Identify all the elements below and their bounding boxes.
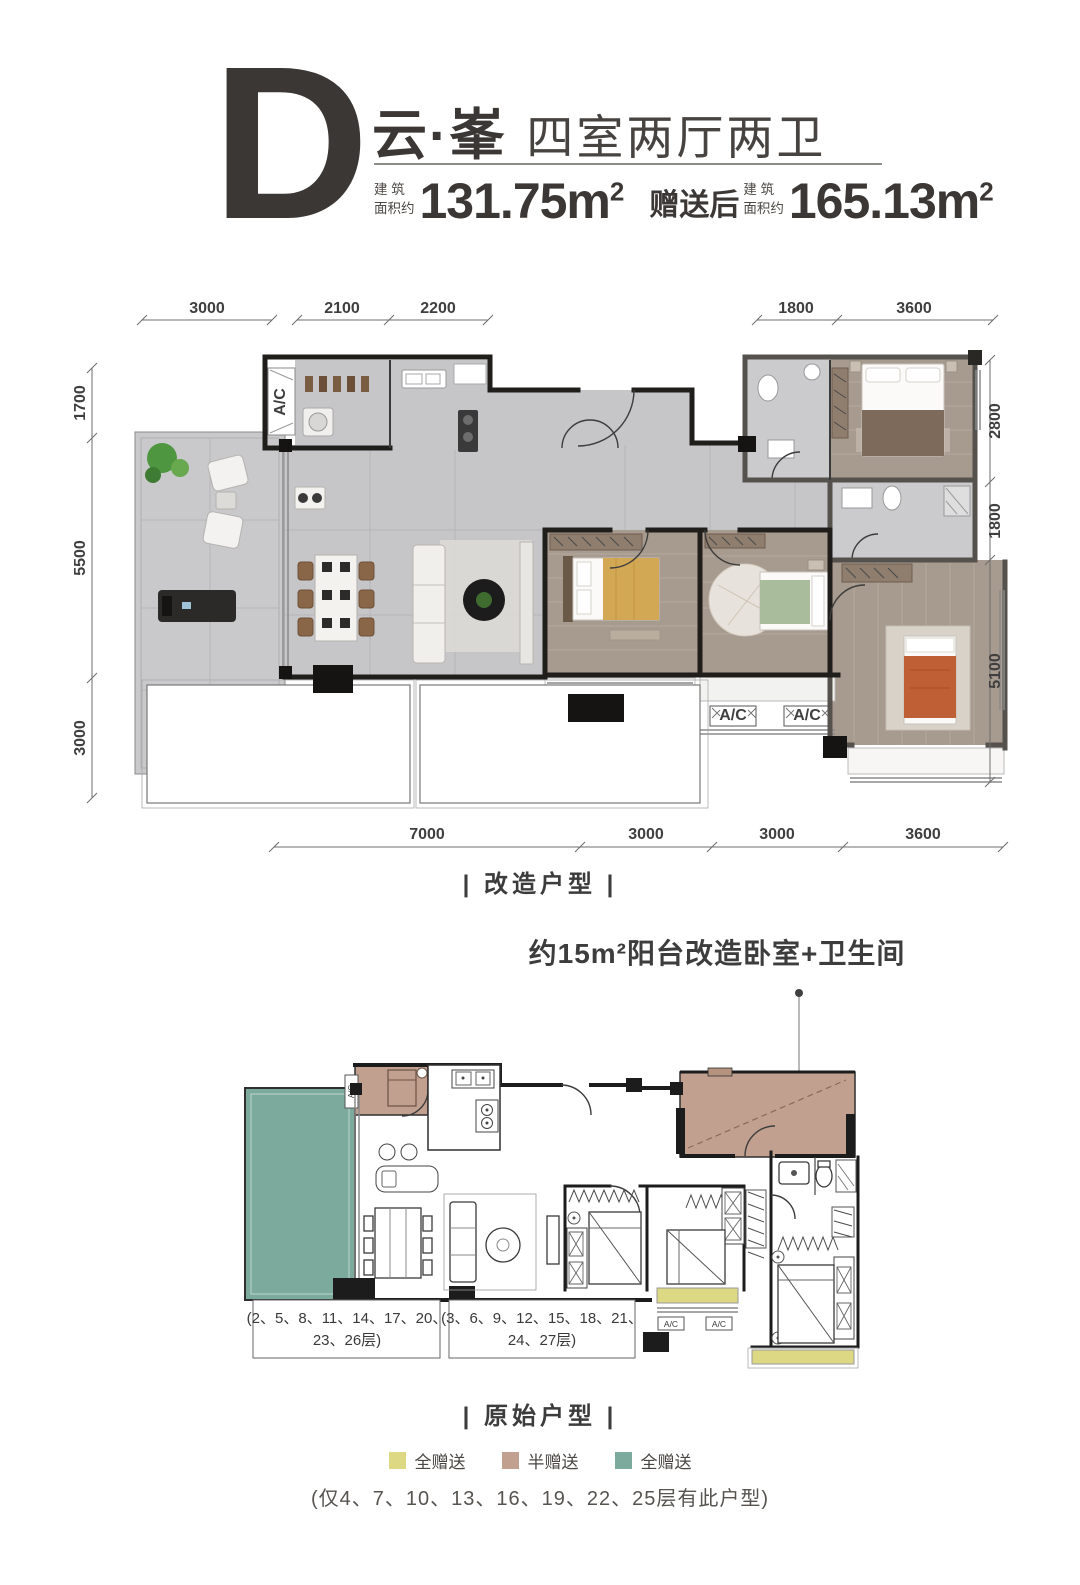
original-dining <box>364 1208 432 1278</box>
bedroom-top-right <box>830 358 975 480</box>
bench <box>158 590 236 622</box>
balcony-conversion-note: 约15m²阳台改造卧室+卫生间 <box>450 932 984 972</box>
island-lamps <box>376 1144 438 1192</box>
floor-number-boxes: (2、5、8、11、14、17、20、 23、26层) (3、6、9、12、15… <box>247 1300 643 1358</box>
dim-label: 2800 <box>987 403 1004 439</box>
area-label: 建 筑面积约 <box>374 181 415 219</box>
bonus-area-label: 建 筑面积约 <box>743 181 784 219</box>
original-bedroom-b: A/C A/C <box>657 1188 744 1330</box>
bed-master <box>904 636 956 724</box>
ac-label: A/C <box>712 1319 726 1329</box>
bathroom-top <box>745 358 830 480</box>
ac-label: A/C <box>664 1319 678 1329</box>
floors-right: 24、27层) <box>508 1332 576 1349</box>
bedroom-2 <box>545 530 700 675</box>
dim-label: 7000 <box>409 826 445 843</box>
tan-swatch-icon <box>502 1452 519 1469</box>
dim-label: 1700 <box>72 385 89 421</box>
unit-name: 云·峯 <box>372 90 506 170</box>
built-area-value: 131.75m2 <box>420 176 624 226</box>
legend: 全赠送 半赠送 全赠送 <box>0 1448 1080 1473</box>
bonus-area-value: 165.13m2 <box>789 176 993 226</box>
ac-platform: A/C A/C <box>700 675 835 734</box>
dim-label: 3000 <box>759 826 795 843</box>
header-divider <box>374 163 882 165</box>
renovated-floorplan: A/C <box>50 290 1030 870</box>
unit-layout-type: 四室两厅两卫 <box>526 99 826 168</box>
legend-item-full-gift-teal: 全赠送 <box>615 1448 692 1473</box>
dim-label: 1800 <box>987 503 1004 539</box>
dim-label: 3000 <box>72 720 89 756</box>
dim-label: 2200 <box>420 300 456 317</box>
master-balcony <box>848 748 1004 782</box>
legend-label: 全赠送 <box>641 1448 692 1473</box>
ac-label: A/C <box>272 388 289 416</box>
dims-top: 3000 2100 2200 1800 3600 <box>137 300 998 325</box>
area-info-row: 建 筑面积约 131.75m2 赠送后 建 筑面积约 165.13m2 <box>374 176 993 226</box>
living-set <box>413 540 533 664</box>
renovated-plan-caption: | 改造户型 | <box>0 864 1080 899</box>
bonus-prefix: 赠送后 <box>649 191 739 221</box>
dim-label: 3600 <box>905 826 941 843</box>
kitchen <box>390 360 490 452</box>
ac-unit-label: A/C <box>793 707 821 724</box>
original-plan-caption: | 原始户型 | <box>0 1396 1080 1431</box>
dim-label: 5100 <box>987 653 1004 689</box>
original-bathroom <box>779 1157 856 1195</box>
legend-item-full-gift-yellow: 全赠送 <box>389 1448 466 1473</box>
dim-label: 2100 <box>324 300 360 317</box>
utility-room <box>295 360 390 450</box>
ac-closet: A/C <box>268 368 295 435</box>
bed-yellow <box>563 556 659 622</box>
bedroom-3 <box>700 530 830 675</box>
original-bedroom-a <box>567 1190 641 1288</box>
dim-label: 3000 <box>628 826 664 843</box>
dim-label: 3600 <box>896 300 932 317</box>
half-gifted-balcony <box>676 1068 855 1157</box>
dims-bottom: 7000 3000 3000 3600 <box>269 826 1008 852</box>
unit-letter: D <box>212 44 365 245</box>
floors-right: (3、6、9、12、15、18、21、 <box>441 1310 643 1327</box>
unit-title-row: 云·峯 四室两厅两卫 <box>372 90 826 170</box>
bed-double <box>850 361 957 456</box>
dim-label: 1800 <box>778 300 814 317</box>
closet-hatch <box>746 1190 766 1258</box>
master-bedroom <box>830 560 1005 745</box>
legend-label: 全赠送 <box>415 1448 466 1473</box>
legend-item-half-gift: 半赠送 <box>502 1448 579 1473</box>
gifted-terrace <box>245 1088 355 1300</box>
dims-left: 1700 5500 3000 <box>72 363 97 803</box>
yellow-swatch-icon <box>389 1452 406 1469</box>
floors-left: (2、5、8、11、14、17、20、 <box>247 1310 448 1327</box>
floors-left: 23、26层) <box>313 1332 381 1349</box>
floorplan-flyer: D 云·峯 四室两厅两卫 建 筑面积约 131.75m2 赠送后 建 筑面积约 … <box>0 0 1080 1585</box>
availability-note: (仅4、7、10、13、16、19、22、25层有此户型) <box>0 1482 1080 1511</box>
teal-swatch-icon <box>615 1452 632 1469</box>
dim-label: 3000 <box>189 300 225 317</box>
ac-unit-label: A/C <box>719 707 747 724</box>
legend-label: 半赠送 <box>528 1448 579 1473</box>
original-kitchen <box>428 1065 500 1150</box>
original-floorplan: A/C <box>230 980 870 1370</box>
bathroom-right <box>830 480 975 560</box>
original-living <box>444 1194 559 1290</box>
dim-label: 5500 <box>72 540 89 576</box>
